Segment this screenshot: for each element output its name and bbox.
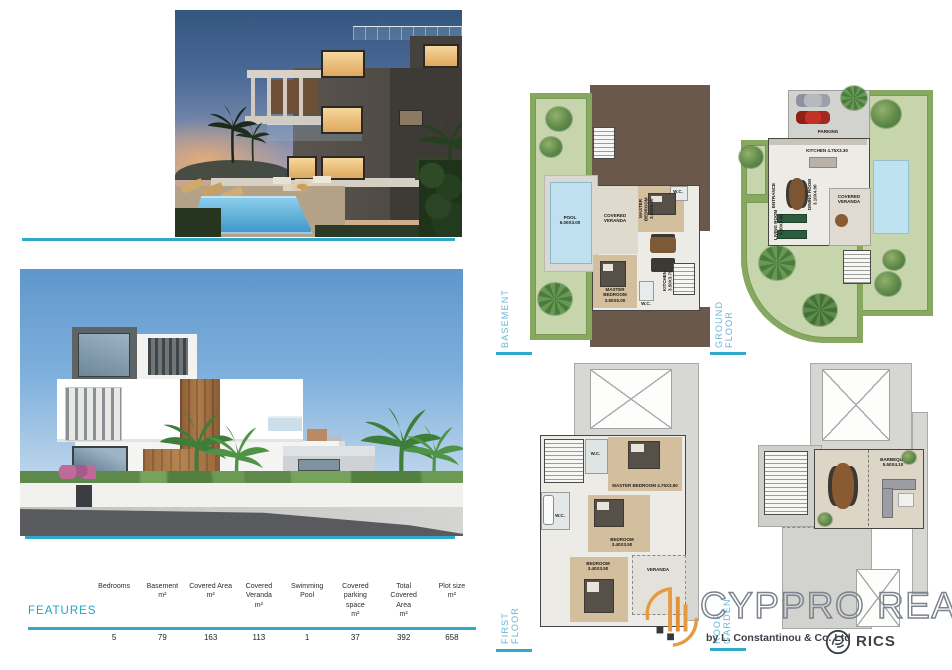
features-heading: FEATURES [28,605,97,617]
feature-value: 392 [380,633,428,642]
parking-label: PARKING [793,129,863,134]
garden-palm [538,283,572,315]
feature-col-header: Basement m² [138,582,186,620]
mid-louver-window [65,387,122,441]
villa-day-photo [20,269,463,536]
rics-label: RICS [856,633,896,650]
feature-col-header: Covered Area m² [187,582,235,620]
feature-value: 79 [138,633,186,642]
feature-col-header: Covered Veranda m² [235,582,283,620]
silver-car [796,94,830,107]
cyppro-logo-icon [643,583,701,651]
basement-plan-label: BASEMENT [500,286,510,348]
garden-palm [759,246,795,280]
bathtub [543,495,554,525]
living-room-label: LIVING ROOM 4.30X4.60 [773,208,784,242]
neighbour-window-strip [298,459,340,471]
palm-silhouette-icon [231,108,275,172]
features-header-row: Bedrooms Basement m² Covered Area m² Cov… [90,582,476,620]
stairs [843,250,871,284]
bougainvillea [58,465,96,479]
dining-table [789,178,805,210]
feature-value: 658 [428,633,476,642]
company-name: CYPPRO REALTY [700,585,952,627]
coffee-table [898,493,914,507]
l-sofa [882,488,893,518]
wc-label: W.C. [638,301,654,306]
feature-value: 113 [235,633,283,642]
top-louver-panel [148,338,188,375]
plant-pot [818,513,832,526]
garden-tree [883,250,905,270]
wc-room [639,281,654,301]
basement-label-underline [496,352,532,355]
feature-col-header: Plot size m² [428,582,476,620]
bedroom-bottom-label: BEDROOM 3.40X3.50 [580,561,616,572]
top-box-window [78,333,130,377]
feature-value: 37 [331,633,379,642]
wc-label: W.C. [670,189,686,194]
bed [628,441,660,469]
ground-floor-plan: PARKING KITCHEN 4.75X3.30 DINING ROOM 3.… [733,82,940,350]
garden-tree [546,107,572,131]
dining-table [832,463,854,509]
garden-palm [803,294,837,326]
feature-value: 163 [187,633,235,642]
features-value-row: 5 79 163 113 1 37 392 658 [90,633,476,642]
stairs [673,263,695,295]
bed [584,579,614,613]
bed [594,499,624,527]
fire-pit [297,184,307,189]
bedroom-mid-label: BEDROOM 3.40X3.50 [604,537,640,548]
covered-veranda-label: COVERED VERANDA [831,194,867,205]
feature-col-header: Swimming Pool [283,582,331,620]
feature-col-header: Total Covered Area m² [380,582,428,620]
features-divider [28,627,476,630]
right-foliage [419,160,462,237]
rics-logo-icon [824,628,852,656]
wc-label: W.C. [585,451,606,456]
bed [600,261,626,287]
garden-tree [540,137,562,157]
basement-floor-plan: POOL 6.00X3.00 COVERED VERANDA MASTER BE… [530,85,710,347]
garden-tree [875,272,901,296]
plant-pot [902,451,916,464]
upper-window [321,50,365,78]
features-table: FEATURES Bedrooms Basement m² Covered Ar… [28,578,448,653]
divider-line-bottom [25,536,455,539]
kitchen-label: KITCHEN 3.50X3.75 [662,261,673,301]
feature-col-header: Covered parking space m² [331,582,379,620]
brochure-page: FEATURES Bedrooms Basement m² Covered Ar… [0,0,952,670]
covered-veranda-label: COVERED VERANDA [594,213,636,224]
lower-window-left [287,156,317,180]
earth-fill [590,307,710,347]
feature-col-header: Bedrooms [90,582,138,620]
garden-palm [841,86,867,110]
pool [873,160,909,234]
feature-value: 5 [90,633,138,642]
garden-tree [871,100,901,128]
stairs [764,451,808,515]
kitchen-counter [769,139,867,145]
lower-glass-door [321,156,365,180]
master-bedroom-label: MASTER BEDROOM 4.75X3.90 [606,483,684,488]
ground-label-underline [710,352,746,355]
stairs [593,127,615,159]
veranda-label: VERANDA [640,567,676,572]
garden-tree [739,146,763,168]
outdoor-sofa-set [273,177,291,184]
master-bedroom-top-label: MASTER BEDROOM 3.60X5.00 [638,188,654,230]
wc-room [585,439,608,474]
roof-label-underline [710,648,746,651]
red-car [796,111,830,124]
divider-line-top [22,238,455,241]
entrance-label: ENTRANCE [771,178,776,212]
void-skylight [822,369,890,441]
master-bedroom-bottom-label: MASTER BEDROOM 3.50X5.00 [594,287,636,303]
penthouse-window [423,44,459,68]
feature-value: 1 [283,633,331,642]
foreground-grass-left [175,208,221,237]
stairs [544,439,584,483]
kitchen-label: KITCHEN 4.75X3.30 [788,148,866,153]
kitchen-island [809,157,837,168]
wc-label: W.C. [552,513,568,518]
first-label-underline [496,649,532,652]
round-table [835,214,848,227]
dining-table [650,237,676,253]
middle-window [321,106,363,134]
ground-plan-label: GROUND FLOOR [714,264,734,348]
dining-room-label: DINING ROOM 3.10X4.00 [807,176,818,214]
villa-dusk-photo [175,10,462,237]
void-skylight [590,369,672,429]
pool-label: POOL 6.00X3.00 [550,215,590,226]
first-plan-label: FIRST FLOOR [500,576,520,644]
